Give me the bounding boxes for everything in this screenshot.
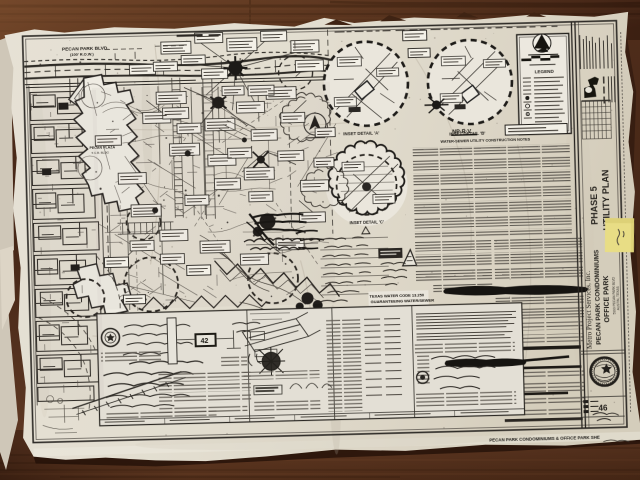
svg-text:PHASE 5: PHASE 5	[589, 186, 600, 225]
svg-text:INSET DETAIL 'C': INSET DETAIL 'C'	[349, 219, 384, 225]
svg-text:AUSTIN, TEXAS: AUSTIN, TEXAS	[616, 286, 621, 310]
svg-text:OFFICE PARK: OFFICE PARK	[603, 275, 611, 322]
svg-text:INSET DETAIL 'A': INSET DETAIL 'A'	[343, 130, 379, 136]
svg-text:LEGEND: LEGEND	[535, 69, 555, 75]
svg-text:46: 46	[598, 404, 608, 413]
svg-text:(100' R.O.W.): (100' R.O.W.)	[70, 51, 94, 57]
